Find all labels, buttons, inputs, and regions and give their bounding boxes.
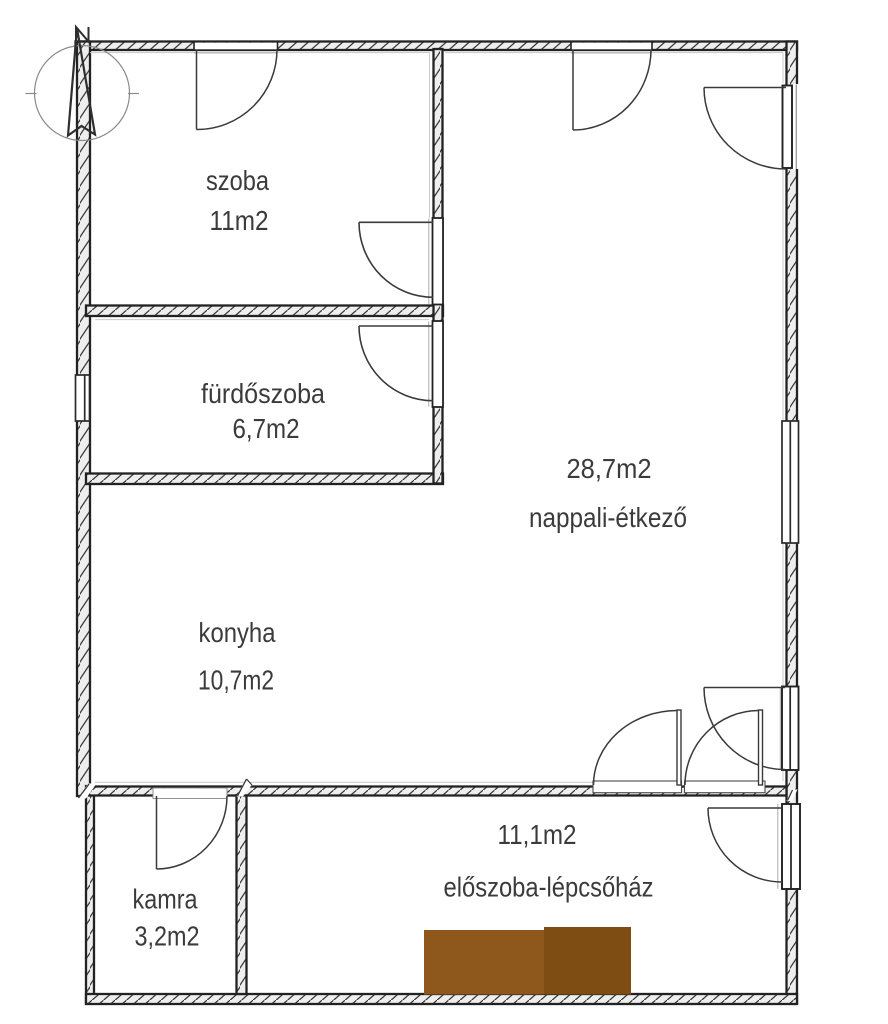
svg-text:10,7m2: 10,7m2 xyxy=(198,665,274,696)
svg-text:előszoba-lépcsőház: előszoba-lépcsőház xyxy=(444,872,654,903)
svg-text:6,7m2: 6,7m2 xyxy=(233,413,300,444)
svg-text:3,2m2: 3,2m2 xyxy=(135,921,200,952)
svg-text:nappali-étkező: nappali-étkező xyxy=(529,502,687,533)
svg-text:28,7m2: 28,7m2 xyxy=(567,453,652,484)
svg-text:11m2: 11m2 xyxy=(210,205,269,236)
svg-text:konyha: konyha xyxy=(199,617,277,648)
svg-text:11,1m2: 11,1m2 xyxy=(498,819,577,850)
svg-text:kamra: kamra xyxy=(133,884,199,915)
svg-text:szoba: szoba xyxy=(206,165,270,196)
svg-text:fürdőszoba: fürdőszoba xyxy=(201,378,326,409)
